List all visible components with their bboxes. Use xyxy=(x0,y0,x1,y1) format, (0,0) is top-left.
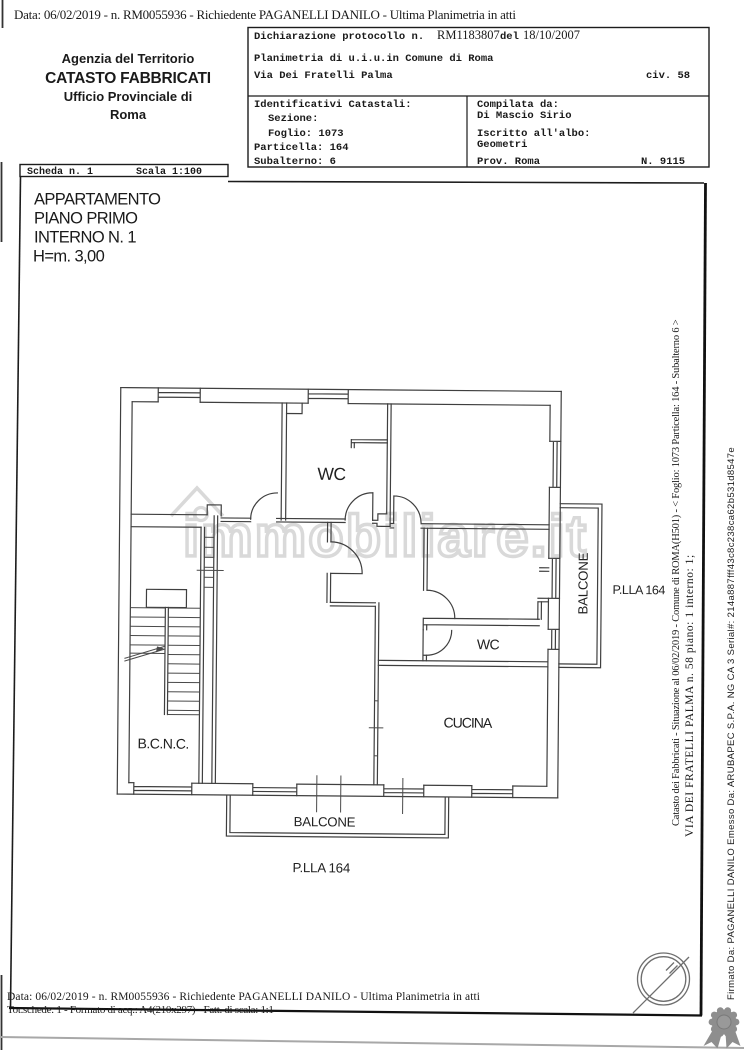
svg-text:Subalterno: 6: Subalterno: 6 xyxy=(254,156,336,168)
svg-text:Sezione:: Sezione: xyxy=(268,113,318,125)
svg-text:B.C.N.C.: B.C.N.C. xyxy=(137,735,188,751)
svg-text:Identificativi Catastali:: Identificativi Catastali: xyxy=(254,99,412,111)
svg-text:Ufficio Provinciale di: Ufficio Provinciale di xyxy=(64,89,193,104)
svg-text:N. 9115: N. 9115 xyxy=(641,156,685,168)
svg-text:Foglio: 1073: Foglio: 1073 xyxy=(268,128,344,140)
svg-text:Prov. Roma: Prov. Roma xyxy=(477,156,541,168)
svg-text:Via Dei Fratelli Palma: Via Dei Fratelli Palma xyxy=(254,70,393,82)
svg-text:Data: 06/02/2019 - n. RM00559: Data: 06/02/2019 - n. RM0055936 - Richie… xyxy=(7,991,480,1003)
svg-text:Di Mascio Sirio: Di Mascio Sirio xyxy=(477,110,572,122)
svg-text:BALCONE: BALCONE xyxy=(575,552,591,614)
svg-text:Scala 1:100: Scala 1:100 xyxy=(136,166,202,178)
svg-text:WC: WC xyxy=(477,636,500,652)
svg-text:INTERNO N. 1: INTERNO N. 1 xyxy=(34,229,136,247)
svg-text:Roma: Roma xyxy=(110,107,147,122)
svg-text:WC: WC xyxy=(317,464,345,484)
svg-text:P.LLA 164: P.LLA 164 xyxy=(293,860,351,876)
svg-text:BALCONE: BALCONE xyxy=(294,814,356,830)
svg-text:Firmato Da: PAGANELLI DANILO E: Firmato Da: PAGANELLI DANILO Emesso Da: … xyxy=(726,447,737,1000)
svg-text:del: del xyxy=(500,31,519,43)
svg-text:18/10/2007: 18/10/2007 xyxy=(523,28,580,42)
svg-text:RM1183807: RM1183807 xyxy=(437,28,500,42)
svg-text:Particella: 164: Particella: 164 xyxy=(254,142,349,154)
svg-text:Dichiarazione protocollo n.: Dichiarazione protocollo n. xyxy=(254,31,424,43)
svg-text:APPARTAMENTO: APPARTAMENTO xyxy=(34,191,161,209)
svg-text:Planimetria di u.i.u.in Comune: Planimetria di u.i.u.in Comune di Roma xyxy=(254,53,494,65)
svg-text:Agenzia del Territorio: Agenzia del Territorio xyxy=(62,51,195,66)
svg-text:PIANO PRIMO: PIANO PRIMO xyxy=(34,210,138,228)
svg-text:Data: 06/02/2019 - n. RM00559: Data: 06/02/2019 - n. RM0055936 - Richie… xyxy=(14,7,516,22)
svg-text:H=m. 3,00: H=m. 3,00 xyxy=(33,248,105,266)
svg-text:CUCINA: CUCINA xyxy=(443,714,492,730)
svg-text:Geometri: Geometri xyxy=(477,139,527,151)
svg-text:Scheda n. 1: Scheda n. 1 xyxy=(27,166,93,178)
svg-text:VIA DEI FRATELLI PALMA n. 58 p: VIA DEI FRATELLI PALMA n. 58 piano: 1 in… xyxy=(684,554,696,837)
svg-text:Catasto dei Fabbricati - Situa: Catasto dei Fabbricati - Situazione al 0… xyxy=(671,319,682,826)
svg-text:civ. 58: civ. 58 xyxy=(646,70,690,82)
svg-text:CATASTO FABBRICATI: CATASTO FABBRICATI xyxy=(45,70,211,87)
svg-text:P.LLA 164: P.LLA 164 xyxy=(612,583,665,597)
svg-text:Tot.schede: 1 - Formato di ac: Tot.schede: 1 - Formato di acq.: A4(210x… xyxy=(7,1004,274,1016)
